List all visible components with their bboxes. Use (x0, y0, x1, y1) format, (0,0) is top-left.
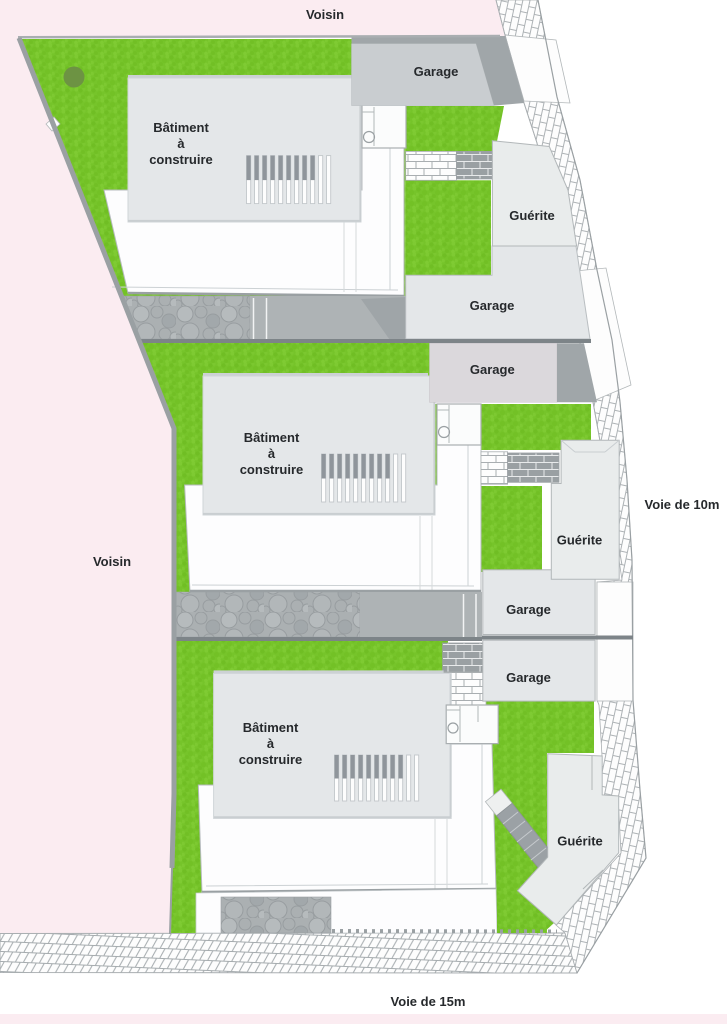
svg-text:Guérite: Guérite (509, 208, 555, 223)
svg-text:Garage: Garage (470, 362, 515, 377)
svg-text:à: à (177, 136, 185, 151)
svg-text:Guérite: Guérite (557, 834, 603, 849)
svg-text:Garage: Garage (506, 670, 551, 685)
svg-text:Garage: Garage (506, 602, 551, 617)
svg-text:à: à (268, 446, 276, 461)
svg-text:construire: construire (239, 752, 303, 767)
svg-text:Guérite: Guérite (557, 533, 603, 548)
svg-text:Bâtiment: Bâtiment (243, 720, 299, 735)
svg-text:construire: construire (240, 462, 304, 477)
svg-text:Garage: Garage (470, 298, 515, 313)
svg-text:Voie de 10m: Voie de 10m (645, 497, 720, 512)
svg-text:Bâtiment: Bâtiment (153, 120, 209, 135)
svg-text:à: à (267, 736, 275, 751)
svg-text:Bâtiment: Bâtiment (244, 430, 300, 445)
svg-text:Voie de 15m: Voie de 15m (391, 994, 466, 1009)
svg-text:Voisin: Voisin (306, 7, 344, 22)
svg-text:Voisin: Voisin (93, 554, 131, 569)
svg-text:Garage: Garage (414, 64, 459, 79)
svg-text:construire: construire (149, 152, 213, 167)
